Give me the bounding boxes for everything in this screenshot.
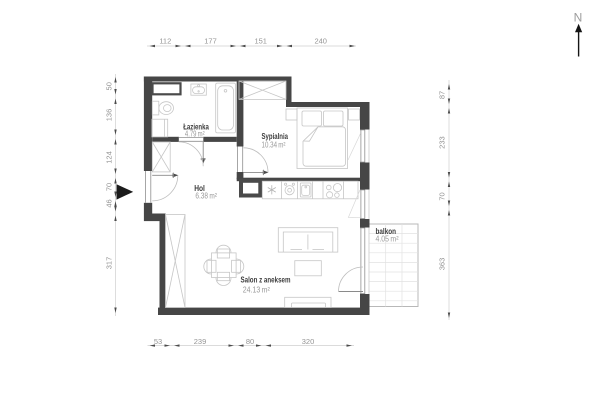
svg-text:10.34 m²: 10.34 m² — [262, 141, 286, 150]
svg-text:70: 70 — [105, 183, 114, 191]
svg-text:239: 239 — [194, 337, 207, 346]
svg-text:112: 112 — [159, 37, 171, 46]
svg-text:N: N — [574, 11, 583, 25]
svg-text:363: 363 — [438, 258, 447, 271]
svg-text:50: 50 — [105, 82, 114, 90]
svg-text:317: 317 — [105, 257, 114, 270]
svg-text:Salon z aneksem: Salon z aneksem — [241, 276, 291, 285]
svg-text:320: 320 — [302, 337, 315, 346]
svg-text:177: 177 — [204, 37, 217, 46]
svg-text:4.79 m²: 4.79 m² — [185, 130, 205, 139]
svg-text:136: 136 — [105, 109, 114, 122]
svg-text:233: 233 — [438, 136, 447, 149]
svg-text:124: 124 — [105, 151, 114, 164]
svg-text:240: 240 — [314, 37, 327, 46]
svg-text:70: 70 — [438, 192, 447, 200]
svg-text:46: 46 — [105, 199, 114, 207]
svg-text:87: 87 — [438, 91, 447, 99]
svg-text:151: 151 — [254, 37, 267, 46]
svg-text:4.05 m²: 4.05 m² — [376, 235, 399, 244]
svg-text:6.38 m²: 6.38 m² — [195, 191, 217, 200]
svg-text:80: 80 — [246, 337, 254, 346]
svg-text:24.13 m²: 24.13 m² — [243, 286, 270, 295]
svg-text:53: 53 — [154, 337, 162, 346]
